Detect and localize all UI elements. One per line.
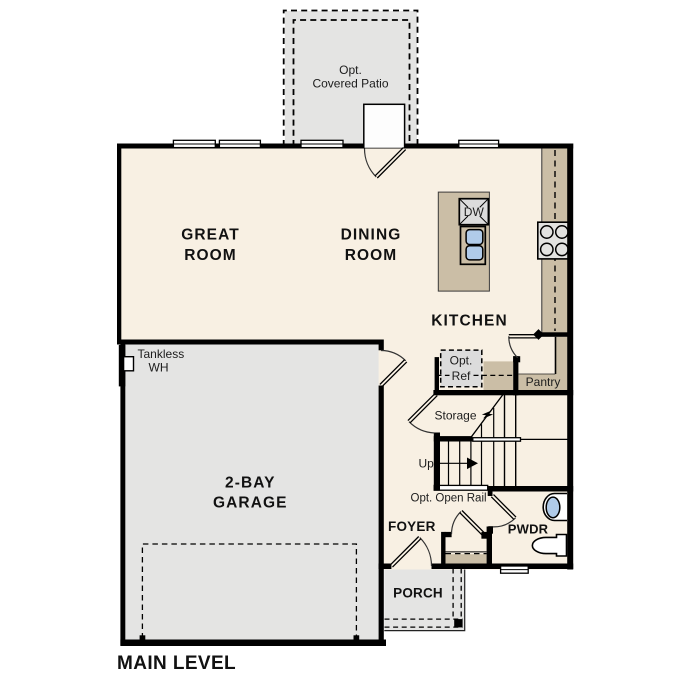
svg-text:Up: Up — [419, 457, 435, 471]
svg-text:DW: DW — [464, 205, 485, 219]
svg-text:2-BAY: 2-BAY — [225, 474, 276, 491]
svg-text:Opt. Open Rail: Opt. Open Rail — [411, 493, 487, 505]
svg-text:DINING: DINING — [341, 226, 402, 243]
svg-text:Covered Patio: Covered Patio — [312, 77, 388, 91]
svg-text:Storage: Storage — [435, 409, 477, 423]
svg-text:PORCH: PORCH — [393, 586, 443, 601]
svg-text:FOYER: FOYER — [388, 519, 436, 534]
svg-text:ROOM: ROOM — [345, 247, 398, 264]
svg-text:Opt.: Opt. — [450, 354, 473, 368]
svg-text:Pantry: Pantry — [526, 375, 561, 389]
svg-text:GARAGE: GARAGE — [213, 494, 288, 511]
svg-text:MAIN LEVEL: MAIN LEVEL — [117, 653, 236, 674]
svg-text:KITCHEN: KITCHEN — [431, 312, 508, 329]
svg-text:ROOM: ROOM — [184, 247, 237, 264]
svg-text:Ref: Ref — [452, 369, 471, 383]
svg-text:Opt.: Opt. — [339, 63, 362, 77]
svg-text:WH: WH — [149, 361, 169, 375]
svg-text:GREAT: GREAT — [181, 226, 240, 243]
svg-text:Tankless: Tankless — [138, 347, 185, 361]
svg-text:PWDR: PWDR — [508, 521, 549, 536]
